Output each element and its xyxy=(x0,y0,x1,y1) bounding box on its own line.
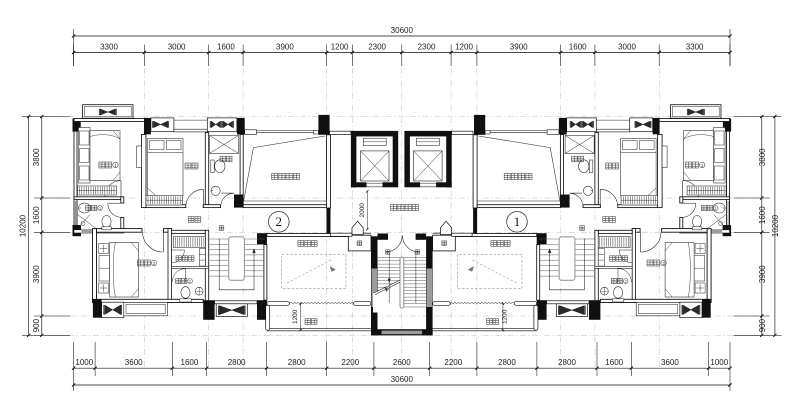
svg-text:1: 1 xyxy=(514,214,521,229)
svg-text:900: 900 xyxy=(758,318,767,332)
svg-text:1200: 1200 xyxy=(455,43,473,52)
svg-text:1200: 1200 xyxy=(331,43,349,52)
svg-text:3000: 3000 xyxy=(168,43,186,52)
svg-text:3600: 3600 xyxy=(661,358,679,367)
svg-text:1600: 1600 xyxy=(758,206,767,224)
svg-text:30600: 30600 xyxy=(391,26,414,35)
svg-text:1600: 1600 xyxy=(32,206,41,224)
svg-text:2200: 2200 xyxy=(444,358,462,367)
svg-text:1200: 1200 xyxy=(502,309,509,324)
svg-text:1600: 1600 xyxy=(181,358,199,367)
svg-text:30600: 30600 xyxy=(391,375,414,384)
svg-text:2800: 2800 xyxy=(498,358,516,367)
svg-text:3900: 3900 xyxy=(32,265,41,283)
svg-text:1: 1 xyxy=(99,206,101,211)
svg-text:1200: 1200 xyxy=(292,309,299,324)
svg-text:2: 2 xyxy=(189,279,191,284)
svg-text:2200: 2200 xyxy=(341,358,359,367)
svg-text:3000: 3000 xyxy=(618,43,636,52)
svg-text:2600: 2600 xyxy=(393,358,411,367)
svg-text:10200: 10200 xyxy=(771,214,780,237)
svg-text:1600: 1600 xyxy=(569,43,587,52)
svg-text:900: 900 xyxy=(32,318,41,332)
svg-text:2000: 2000 xyxy=(359,203,366,218)
svg-text:1600: 1600 xyxy=(605,358,623,367)
svg-text:1600: 1600 xyxy=(217,43,235,52)
svg-text:2800: 2800 xyxy=(288,358,306,367)
svg-text:1: 1 xyxy=(715,206,717,211)
svg-text:2: 2 xyxy=(276,214,283,229)
svg-text:2800: 2800 xyxy=(558,358,576,367)
svg-text:3800: 3800 xyxy=(32,148,41,166)
svg-text:2300: 2300 xyxy=(368,43,386,52)
svg-text:3900: 3900 xyxy=(276,43,294,52)
svg-text:1000: 1000 xyxy=(75,358,93,367)
svg-text:3800: 3800 xyxy=(758,148,767,166)
svg-text:3300: 3300 xyxy=(100,43,118,52)
svg-text:2800: 2800 xyxy=(228,358,246,367)
svg-text:3300: 3300 xyxy=(686,43,704,52)
svg-text:3600: 3600 xyxy=(125,358,143,367)
svg-text:1000: 1000 xyxy=(710,358,728,367)
svg-text:10200: 10200 xyxy=(19,214,28,237)
svg-text:2: 2 xyxy=(625,279,627,284)
svg-text:3900: 3900 xyxy=(758,265,767,283)
svg-text:2300: 2300 xyxy=(418,43,436,52)
svg-text:3900: 3900 xyxy=(510,43,528,52)
